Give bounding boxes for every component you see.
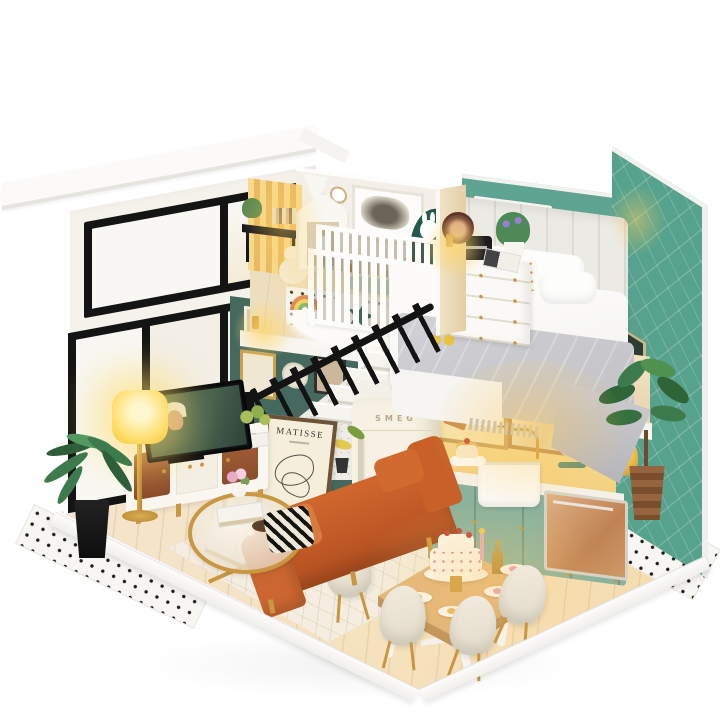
striped-pot bbox=[626, 466, 668, 520]
plant-leaf bbox=[653, 372, 693, 408]
flower-vase bbox=[232, 484, 246, 497]
fridge-door-seam bbox=[358, 430, 434, 431]
farmhouse-sink bbox=[478, 462, 540, 507]
cake-berry bbox=[444, 530, 450, 536]
plant-leaf bbox=[649, 403, 687, 424]
fiddle-leaf-plant bbox=[592, 360, 702, 520]
bunny-ear bbox=[422, 212, 427, 224]
poster-subline bbox=[289, 441, 309, 445]
cake-stand-pedestal bbox=[450, 576, 462, 592]
cake bbox=[456, 442, 478, 458]
console-leg bbox=[176, 503, 181, 517]
upper-window-pane-1 bbox=[92, 205, 220, 309]
purple-flower-plant bbox=[496, 212, 530, 246]
potted-palm bbox=[40, 436, 150, 566]
desk-plant bbox=[242, 198, 262, 218]
candle-flame bbox=[479, 528, 485, 534]
cake-berry bbox=[466, 532, 472, 538]
black-planter bbox=[72, 500, 112, 558]
cake-cherry bbox=[464, 438, 470, 444]
desk-leg bbox=[246, 232, 249, 262]
console-plant bbox=[236, 404, 272, 430]
counter-cake bbox=[450, 442, 486, 466]
cake-berry bbox=[456, 528, 462, 534]
crib-leg bbox=[310, 312, 315, 326]
desk-books bbox=[272, 208, 296, 224]
pink-candle bbox=[480, 534, 484, 560]
gallery-sconce bbox=[252, 316, 259, 329]
cow-print bbox=[361, 194, 409, 232]
bunny-ear bbox=[430, 212, 435, 224]
plant-leaf bbox=[345, 423, 367, 442]
plant-pot bbox=[334, 458, 350, 473]
poster-title: MATISSE bbox=[268, 424, 333, 441]
partition-wall bbox=[436, 184, 466, 336]
bed-pillow bbox=[540, 272, 596, 304]
plant-leaf bbox=[605, 408, 643, 428]
partition-sconce bbox=[446, 234, 453, 247]
miniature-dollhouse-photo: SMEG MATISSE bbox=[0, 0, 720, 720]
